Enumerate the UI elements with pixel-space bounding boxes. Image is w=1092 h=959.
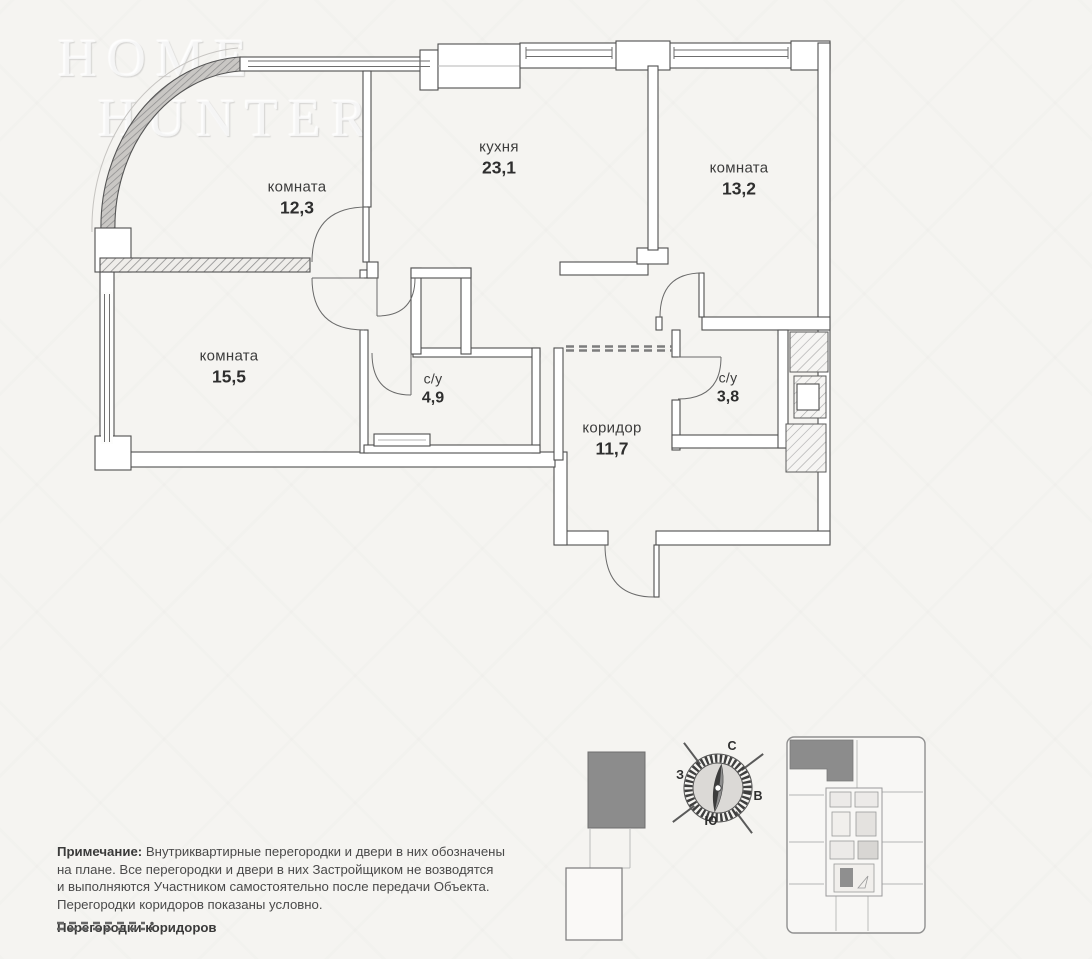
room-area: 11,7 bbox=[582, 438, 641, 460]
room-label-bathroom-4-9: с/у 4,9 bbox=[422, 370, 444, 408]
bathroom-fixture bbox=[374, 434, 430, 446]
note-block: Примечание: Внутриквартирные перегородки… bbox=[57, 843, 535, 913]
room-label-komnata-15-5: комната 15,5 bbox=[200, 348, 259, 389]
room-area: 13,2 bbox=[710, 178, 769, 200]
note-line-2: на плане. Все перегородки и двери в них … bbox=[57, 862, 493, 877]
note-line-4: Перегородки коридоров показаны условно. bbox=[57, 897, 323, 912]
room-area: 4,9 bbox=[422, 388, 444, 408]
corridor-partition-dashes bbox=[566, 347, 672, 351]
compass-rose bbox=[673, 743, 763, 833]
room-label-kitchen: кухня 23,1 bbox=[479, 139, 519, 180]
floor-plan-svg bbox=[0, 0, 1092, 959]
note-line-1: Внутриквартирные перегородки и двери в н… bbox=[146, 844, 505, 859]
room-area: 3,8 bbox=[717, 387, 739, 407]
room-name: с/у bbox=[422, 370, 444, 388]
compass-east-label: В bbox=[753, 789, 762, 803]
room-label-bathroom-3-8: с/у 3,8 bbox=[717, 369, 739, 407]
legend-row: Перегородки коридоров bbox=[57, 920, 217, 935]
note-line-3: и выполняются Участником самостоятельно … bbox=[57, 879, 490, 894]
room-name: кухня bbox=[479, 139, 519, 158]
note-title: Примечание: bbox=[57, 844, 142, 859]
room-label-komnata-13-2: комната 13,2 bbox=[710, 160, 769, 201]
floorplate-minimap bbox=[787, 737, 925, 933]
room-label-corridor: коридор 11,7 bbox=[582, 420, 641, 461]
corridor-partition-dash-symbol bbox=[57, 920, 161, 932]
room-name: коридор bbox=[582, 420, 641, 439]
room-name: комната bbox=[710, 160, 769, 179]
room-area: 23,1 bbox=[479, 157, 519, 179]
ventilation-shafts bbox=[786, 332, 828, 472]
room-area: 15,5 bbox=[200, 366, 259, 388]
compass-south-label: Ю bbox=[705, 814, 718, 828]
room-name: комната bbox=[200, 348, 259, 367]
compass-west-label: З bbox=[676, 768, 684, 782]
room-label-komnata-12-3: комната 12,3 bbox=[268, 179, 327, 220]
curved-balcony-wall bbox=[92, 48, 240, 232]
room-area: 12,3 bbox=[268, 197, 327, 219]
room-name: комната bbox=[268, 179, 327, 198]
room-name: с/у bbox=[717, 369, 739, 387]
compass-north-label: С bbox=[727, 739, 736, 753]
section-key bbox=[566, 752, 645, 940]
